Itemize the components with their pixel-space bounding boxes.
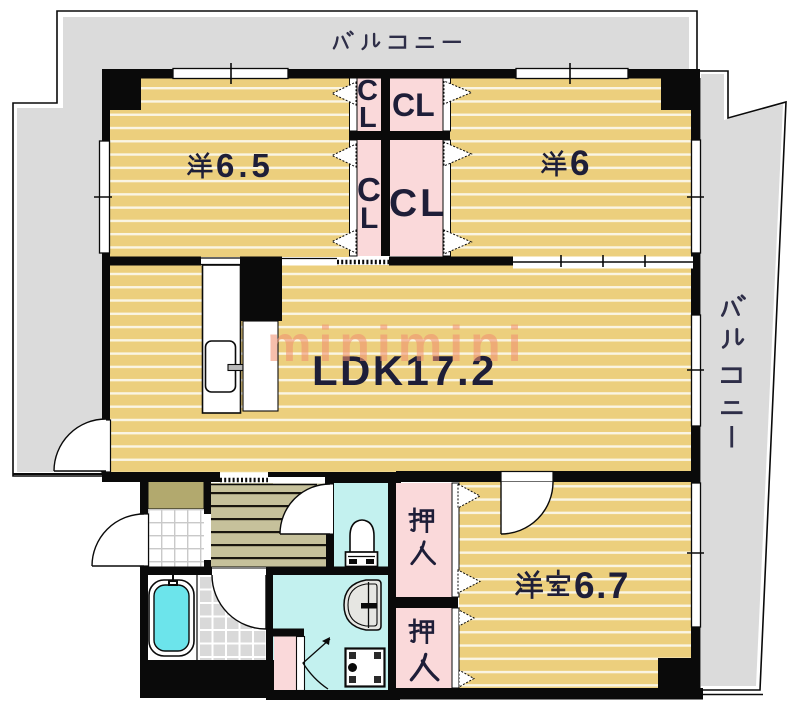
svg-text:6.7: 6.7 (574, 565, 630, 606)
svg-text:CL: CL (389, 182, 447, 225)
svg-text:L: L (360, 202, 378, 235)
svg-text:L: L (359, 102, 377, 134)
svg-text:6: 6 (570, 144, 589, 183)
svg-text:6.5: 6.5 (216, 147, 274, 184)
svg-text:CL: CL (392, 87, 435, 123)
svg-text:minimini: minimini (267, 316, 529, 372)
